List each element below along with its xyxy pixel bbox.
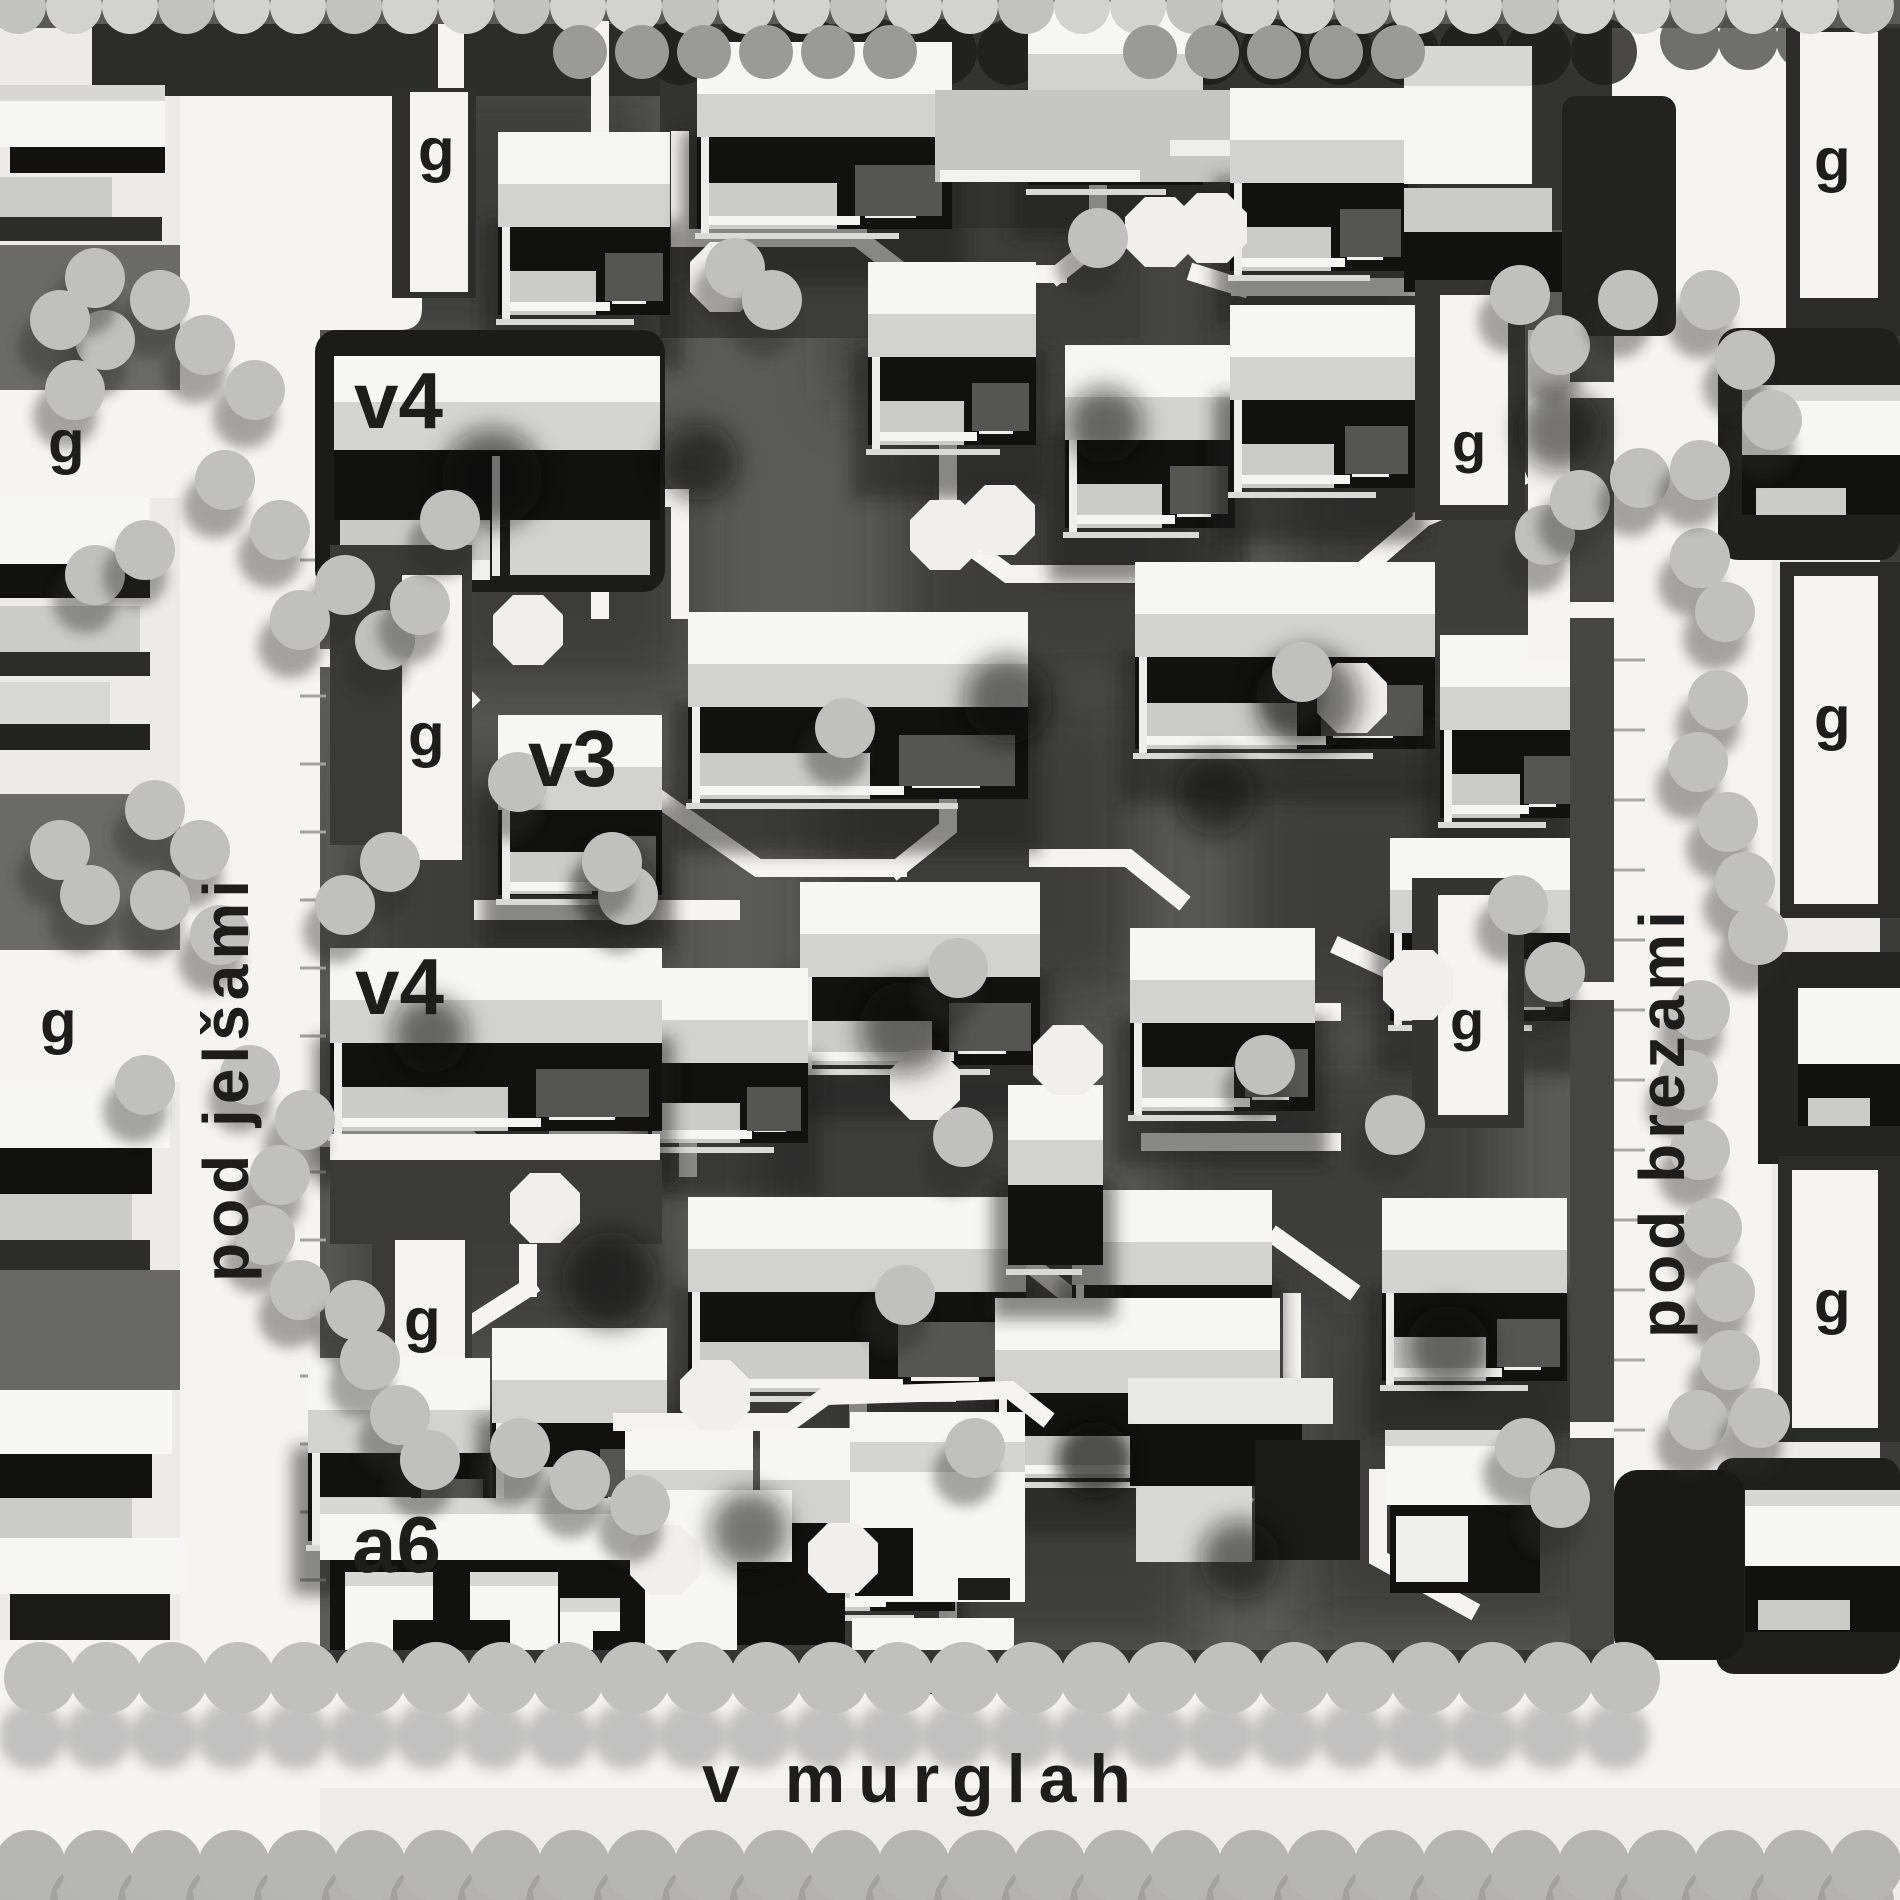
svg-text:a6: a6: [352, 1500, 441, 1589]
svg-text:v4: v4: [354, 356, 443, 445]
svg-text:g: g: [40, 988, 77, 1055]
svg-text:v4: v4: [355, 942, 444, 1031]
svg-text:pod brezami: pod brezami: [1626, 906, 1698, 1338]
svg-text:v3: v3: [528, 714, 617, 803]
svg-text:g: g: [1452, 411, 1486, 474]
svg-text:g: g: [1814, 1268, 1851, 1335]
svg-text:g: g: [1450, 989, 1484, 1052]
svg-text:g: g: [48, 408, 85, 475]
svg-text:pod jelšami: pod jelšami: [190, 875, 262, 1282]
svg-text:g: g: [418, 116, 455, 183]
svg-text:g: g: [1814, 126, 1851, 193]
svg-text:g: g: [1814, 684, 1851, 751]
svg-text:g: g: [408, 701, 445, 768]
svg-text:v murglah: v murglah: [702, 1741, 1144, 1817]
svg-text:g: g: [404, 1286, 441, 1353]
